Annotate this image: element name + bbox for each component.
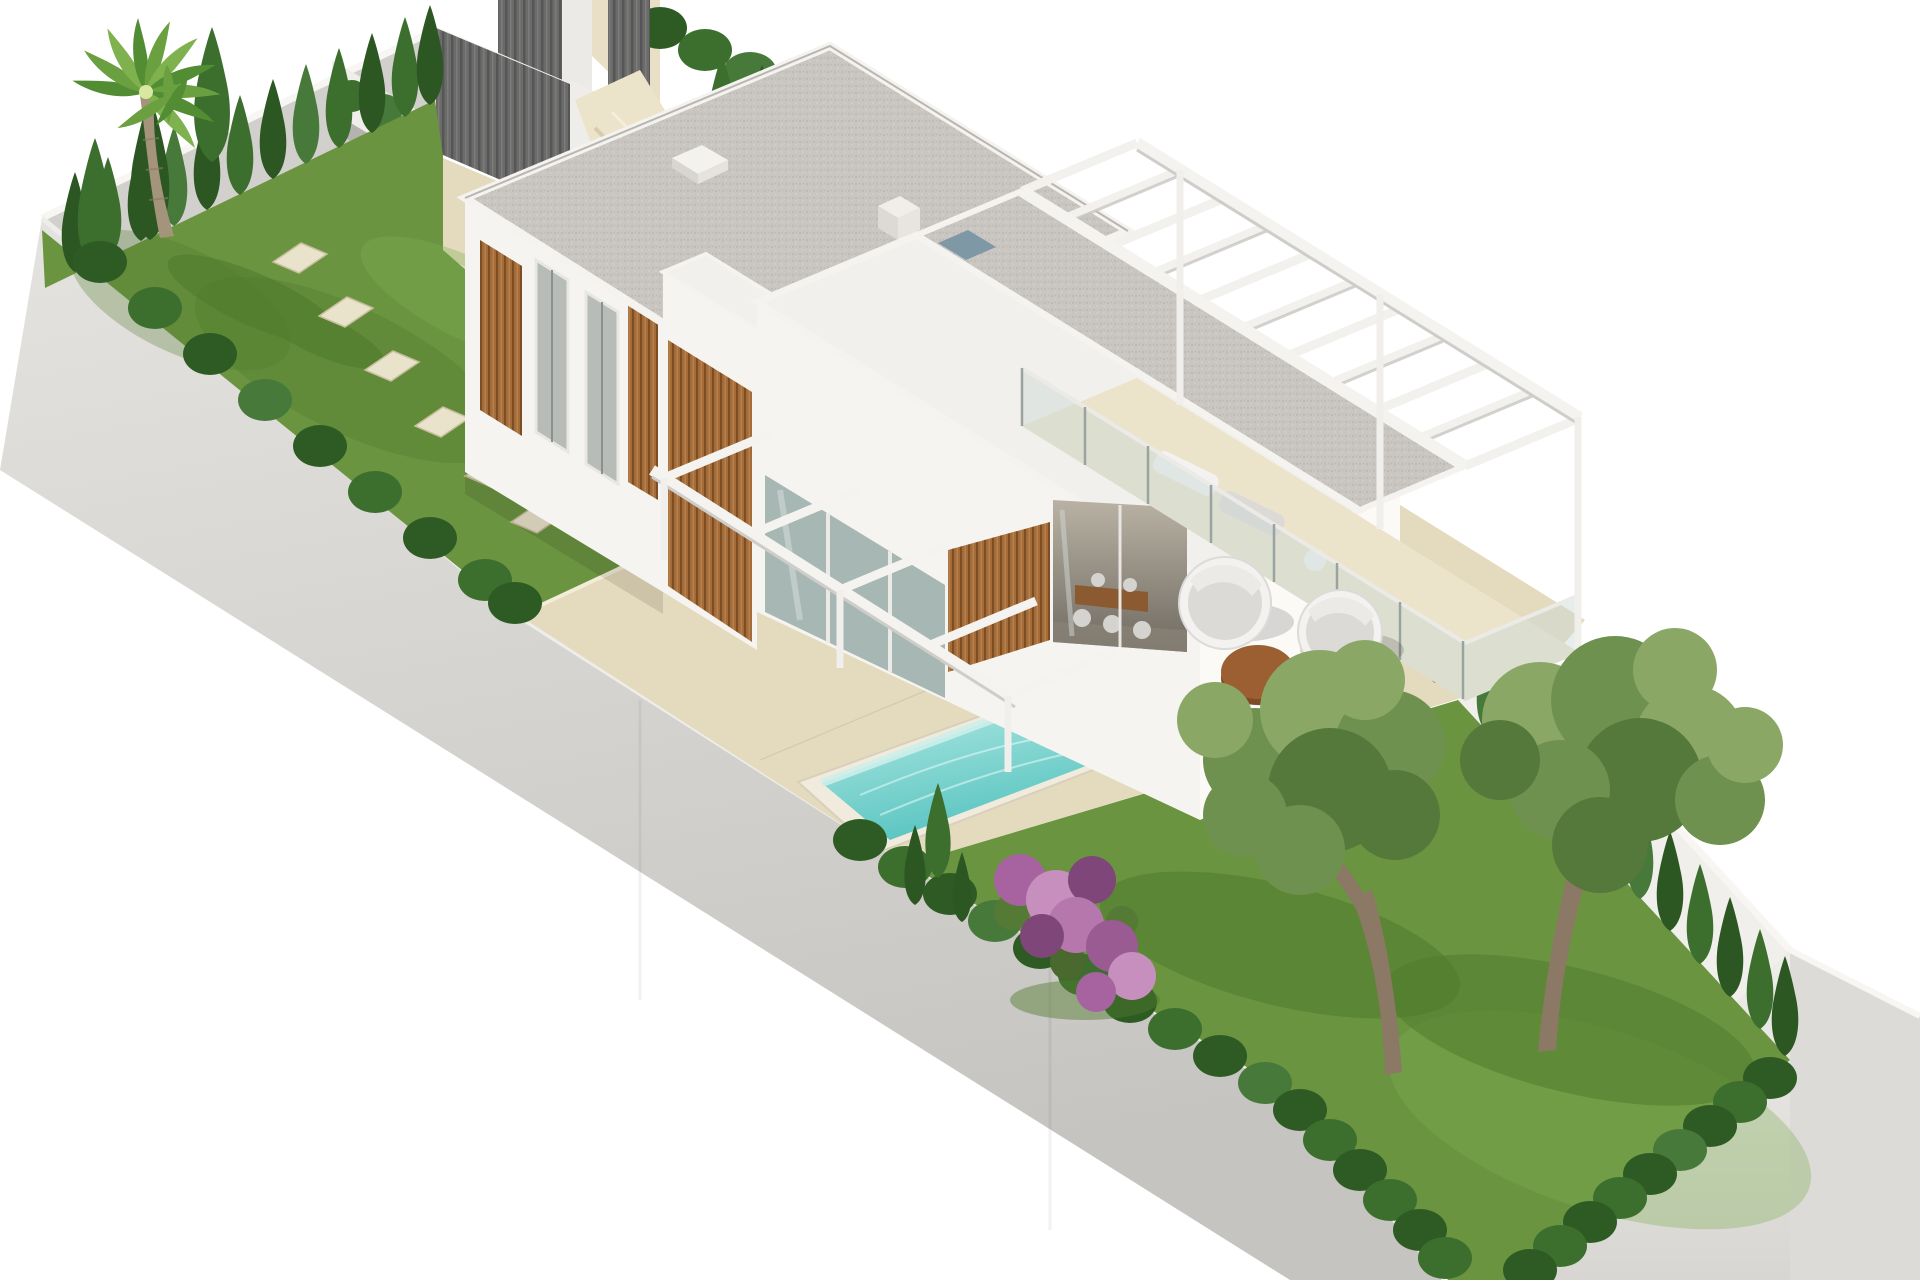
render-canvas	[0, 0, 1920, 1280]
round-daybed-1	[1179, 557, 1271, 649]
wood-panel-1	[480, 240, 522, 436]
villa-render	[0, 0, 1920, 1280]
